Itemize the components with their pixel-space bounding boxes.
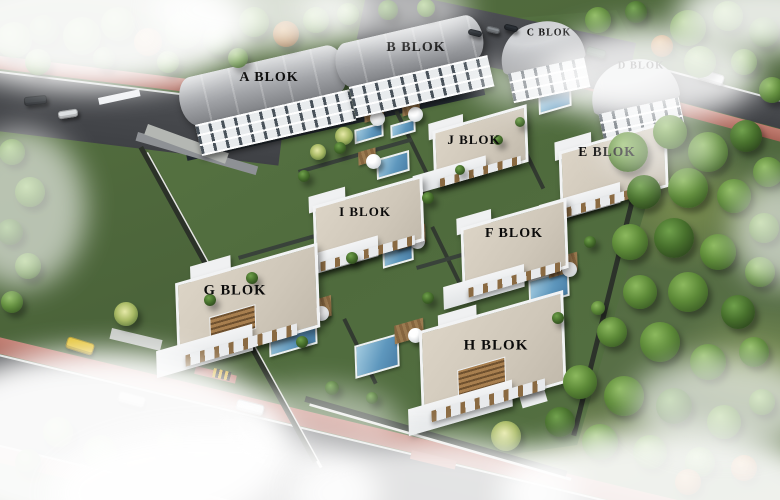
tree	[721, 295, 755, 329]
tree	[759, 77, 780, 103]
tree	[422, 192, 434, 204]
label-h-blok: H BLOK	[464, 338, 529, 355]
tree	[1, 291, 23, 313]
tree	[298, 170, 310, 182]
tree	[334, 142, 346, 154]
tree	[668, 272, 708, 312]
tree	[640, 322, 680, 362]
tree	[346, 252, 358, 264]
tree	[455, 165, 465, 175]
tree	[623, 275, 657, 309]
tree	[591, 301, 605, 315]
fog-patch	[230, 386, 400, 461]
tree	[730, 120, 762, 152]
tree	[584, 236, 596, 248]
label-g-blok: G BLOK	[204, 283, 267, 300]
tree	[563, 365, 597, 399]
tree	[700, 234, 736, 270]
tree	[612, 224, 648, 260]
label-i-blok: I BLOK	[339, 204, 391, 220]
palm-tree	[114, 302, 138, 326]
tree	[515, 117, 525, 127]
fog-patch	[600, 120, 720, 180]
tree	[422, 292, 434, 304]
tree	[654, 218, 694, 258]
tree	[627, 175, 661, 209]
tree	[545, 407, 575, 437]
fog-patch	[470, 58, 590, 108]
label-f-blok: F BLOK	[485, 226, 543, 242]
palm-tree	[310, 144, 326, 160]
parasol-umbrella	[366, 154, 381, 169]
label-b-blok: B BLOK	[386, 40, 445, 56]
label-j-blok: J BLOK	[447, 132, 500, 148]
aerial-site-render: A BLOK B BLOK C BLOK D BLOK E BLOK F BLO…	[0, 0, 780, 500]
tree	[625, 1, 647, 23]
tree	[552, 312, 564, 324]
tree	[597, 317, 627, 347]
label-a-blok: A BLOK	[239, 70, 298, 86]
label-c-blok: C BLOK	[527, 28, 572, 39]
tree	[296, 336, 308, 348]
